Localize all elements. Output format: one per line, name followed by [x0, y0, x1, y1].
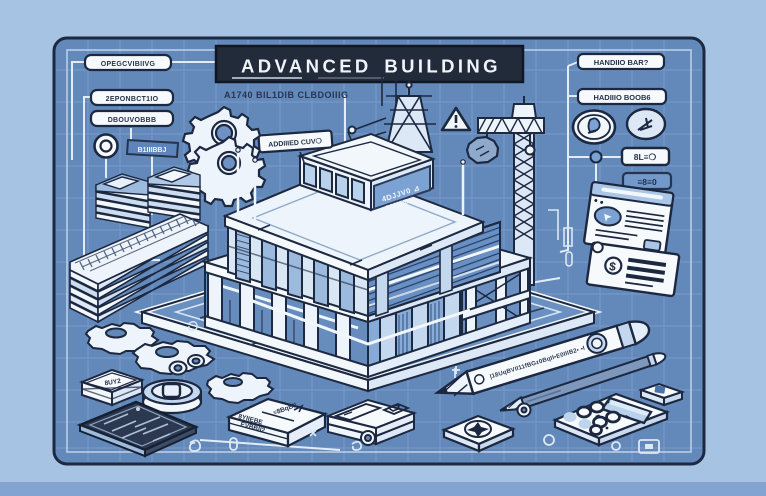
svg-text:2EPONBCT1IO: 2EPONBCT1IO — [106, 96, 159, 103]
svg-text:DBOUVOBBB: DBOUVOBBB — [108, 117, 157, 124]
svg-text:≡8≡0: ≡8≡0 — [637, 177, 657, 187]
svg-text:OPEGCVIBIIVG: OPEGCVIBIIVG — [101, 61, 156, 68]
svg-text:B1IIIBBJ: B1IIIBBJ — [138, 147, 167, 154]
svg-text:8L≡❍: 8L≡❍ — [634, 152, 657, 162]
svg-text:HADIIIO BOOB6: HADIIIO BOOB6 — [593, 93, 650, 102]
svg-text:A1740 BIL1DIB CLBDOIIIG: A1740 BIL1DIB CLBDOIIIG — [224, 90, 349, 100]
svg-text:HANDIIO BAR?: HANDIIO BAR? — [594, 58, 649, 67]
svg-text:ADVANCED BUILDING: ADVANCED BUILDING — [241, 56, 501, 77]
